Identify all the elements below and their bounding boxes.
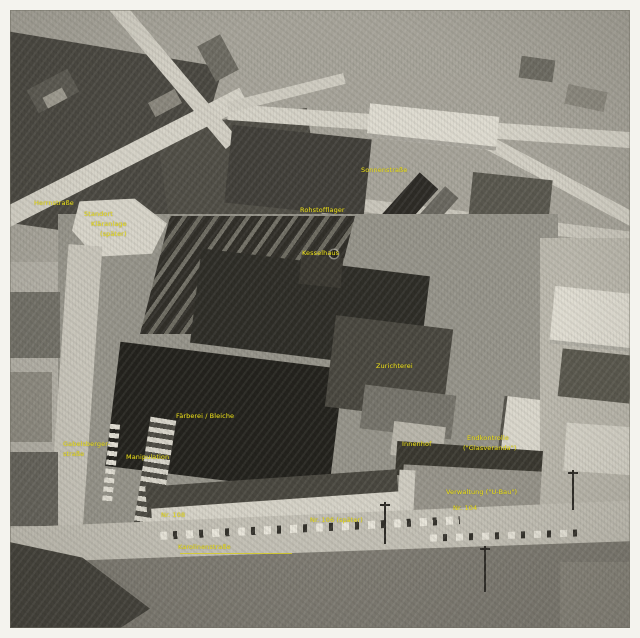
yard-bottom-right: [560, 562, 640, 638]
label-sonnenstrasse: Sonnenstraße: [361, 167, 407, 174]
annotated-aerial-photo-page: Herrnstraße Standort Kläranlage (später)…: [0, 0, 640, 638]
label-nr-108: Nr. 108: [161, 512, 185, 519]
label-herrnstrasse: Herrnstraße: [34, 200, 74, 207]
label-endkontrolle-line2: ("Glasveranda"): [463, 445, 517, 452]
label-weststrasse-line1: Gabelsberger-: [63, 441, 110, 448]
white-hall-east-south: [563, 423, 636, 476]
label-verwaltung-u-bau: Verwaltung ("U-Bau"): [446, 489, 517, 496]
utility-pole-crossarm: [568, 472, 578, 474]
label-weststrasse-line2: straße: [63, 451, 84, 458]
west-edge-building: [0, 452, 58, 526]
label-innenhof: Innenhof: [402, 441, 431, 448]
label-kesselhaus: Kesselhaus: [302, 250, 339, 257]
white-hall-east: [549, 286, 637, 352]
karolinenstrasse-leader-line: [180, 553, 292, 554]
dark-yard-east: [558, 348, 635, 403]
label-faerberei-bleiche: Färberei / Bleiche: [176, 413, 234, 420]
building-north-halls: [224, 125, 371, 217]
label-nr-104: Nr. 104: [453, 505, 477, 512]
label-karolinenstrasse: Karolinenstraße: [178, 544, 231, 551]
utility-pole-crossarm: [480, 548, 490, 550]
utility-pole-crossarm: [380, 504, 390, 506]
aerial-photo: [0, 0, 640, 638]
building-kesselhaus: [299, 254, 344, 288]
label-endkontrolle-line1: Endkontrolle: [467, 435, 509, 442]
utility-pole: [572, 470, 574, 510]
house-block-right: [519, 56, 556, 83]
label-manipulation: Manipulation: [126, 454, 169, 461]
label-standort: Standort: [84, 211, 113, 218]
label-zurichterei: Zurichterei: [376, 363, 413, 370]
label-rohstofflager: Rohstofflager: [300, 207, 345, 214]
label-nr-106-spaeter: Nr. 106 (später): [310, 517, 363, 524]
label-klaeranlage: Kläranlage: [91, 221, 127, 228]
west-edge-building: [0, 372, 52, 442]
utility-pole: [384, 502, 386, 544]
label-spaeter: (später): [100, 231, 127, 238]
west-edge-building: [0, 292, 60, 358]
utility-pole: [484, 546, 486, 592]
